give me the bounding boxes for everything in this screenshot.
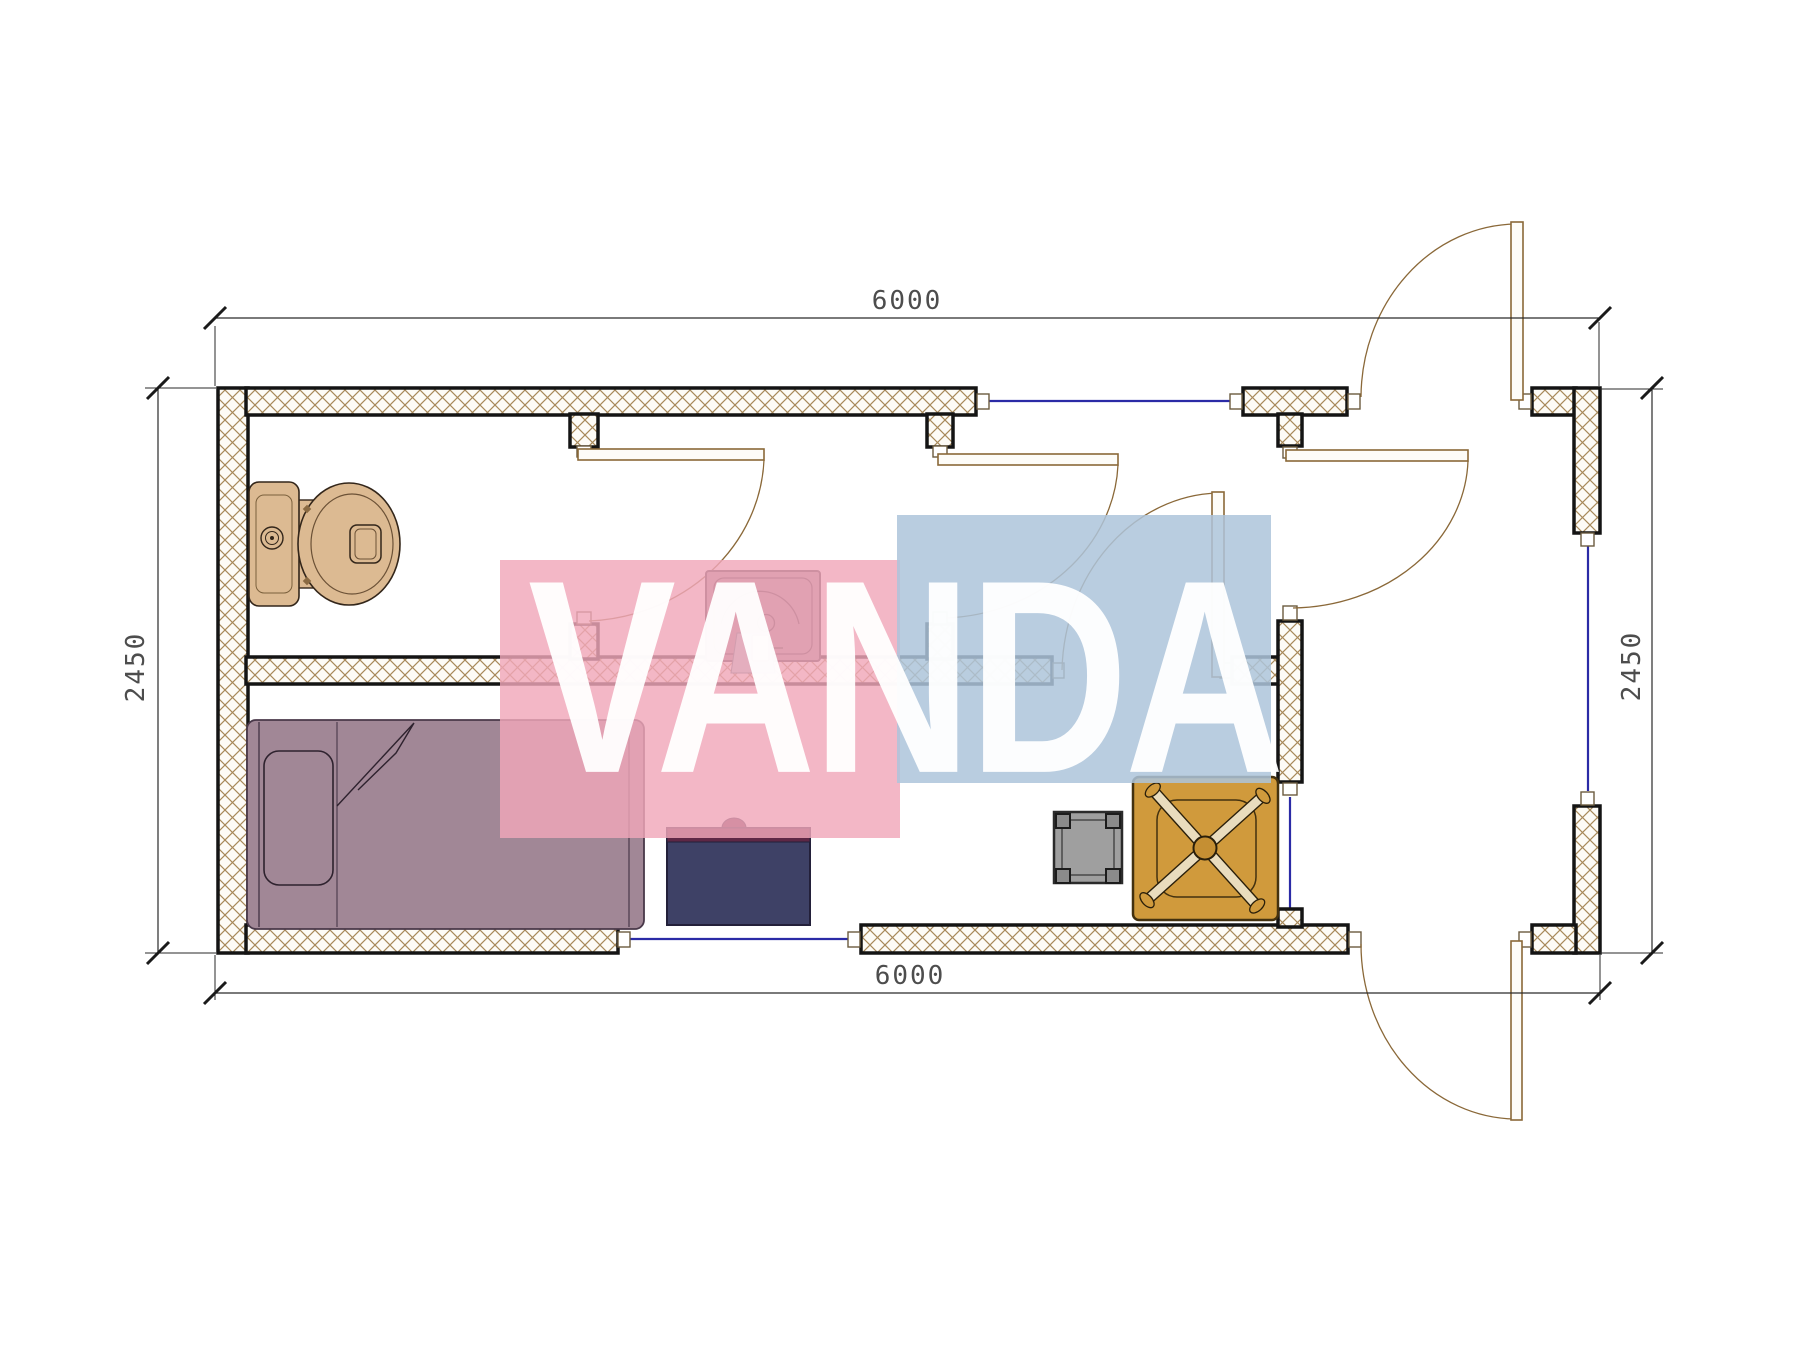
wall-top-t: [1243, 388, 1347, 415]
dimension-label-top: 6000: [872, 286, 943, 316]
door-arc-entry-bottom: [1361, 944, 1515, 1119]
wall-botright-h: [1532, 925, 1576, 953]
door-leaf-shower: [938, 454, 1118, 465]
door-leaf-bathroom: [578, 449, 764, 460]
wall-botright-v: [1574, 806, 1600, 953]
wall-left: [218, 388, 248, 953]
wall-partition1-top: [570, 414, 598, 447]
door-arc-entry-top: [1361, 224, 1516, 397]
wall-top-main: [246, 388, 976, 415]
wall-partition2-top: [927, 414, 953, 447]
dimension-label-right: 2450: [1617, 631, 1647, 702]
door-leaf-entry-top: [1511, 222, 1523, 400]
dimension-left: [145, 377, 216, 964]
wall-topright-v: [1574, 388, 1600, 533]
wall-topright-h: [1532, 388, 1576, 415]
floor-plan-canvas: 6000 6000 2450 2450 VANDA: [0, 0, 1800, 1350]
door-leaf-entry-bottom: [1511, 941, 1522, 1120]
dimension-label-bottom: 6000: [875, 961, 946, 991]
toilet: [249, 482, 400, 606]
door-arc-vestibule: [1293, 461, 1468, 608]
wall-top-t-stub: [1278, 414, 1302, 446]
dimension-top: [204, 307, 1611, 386]
wall-partition3: [1278, 621, 1302, 782]
pillow: [264, 751, 333, 885]
watermark-text: VANDA: [528, 540, 1281, 815]
door-leaf-vestibule: [1286, 450, 1468, 461]
wall-bottom-mid: [861, 925, 1348, 953]
wall-bottom-step: [1278, 909, 1302, 927]
dimension-label-left: 2450: [121, 632, 151, 703]
